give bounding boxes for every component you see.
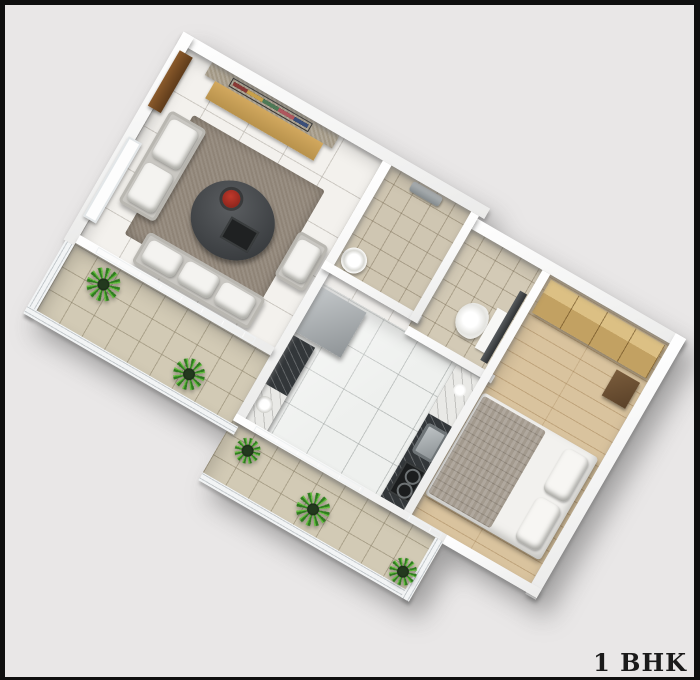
apartment-plan <box>2 48 677 653</box>
unit-type-label: 1 BHK <box>593 648 687 677</box>
floor-plan-render: 1 BHK <box>0 0 700 680</box>
